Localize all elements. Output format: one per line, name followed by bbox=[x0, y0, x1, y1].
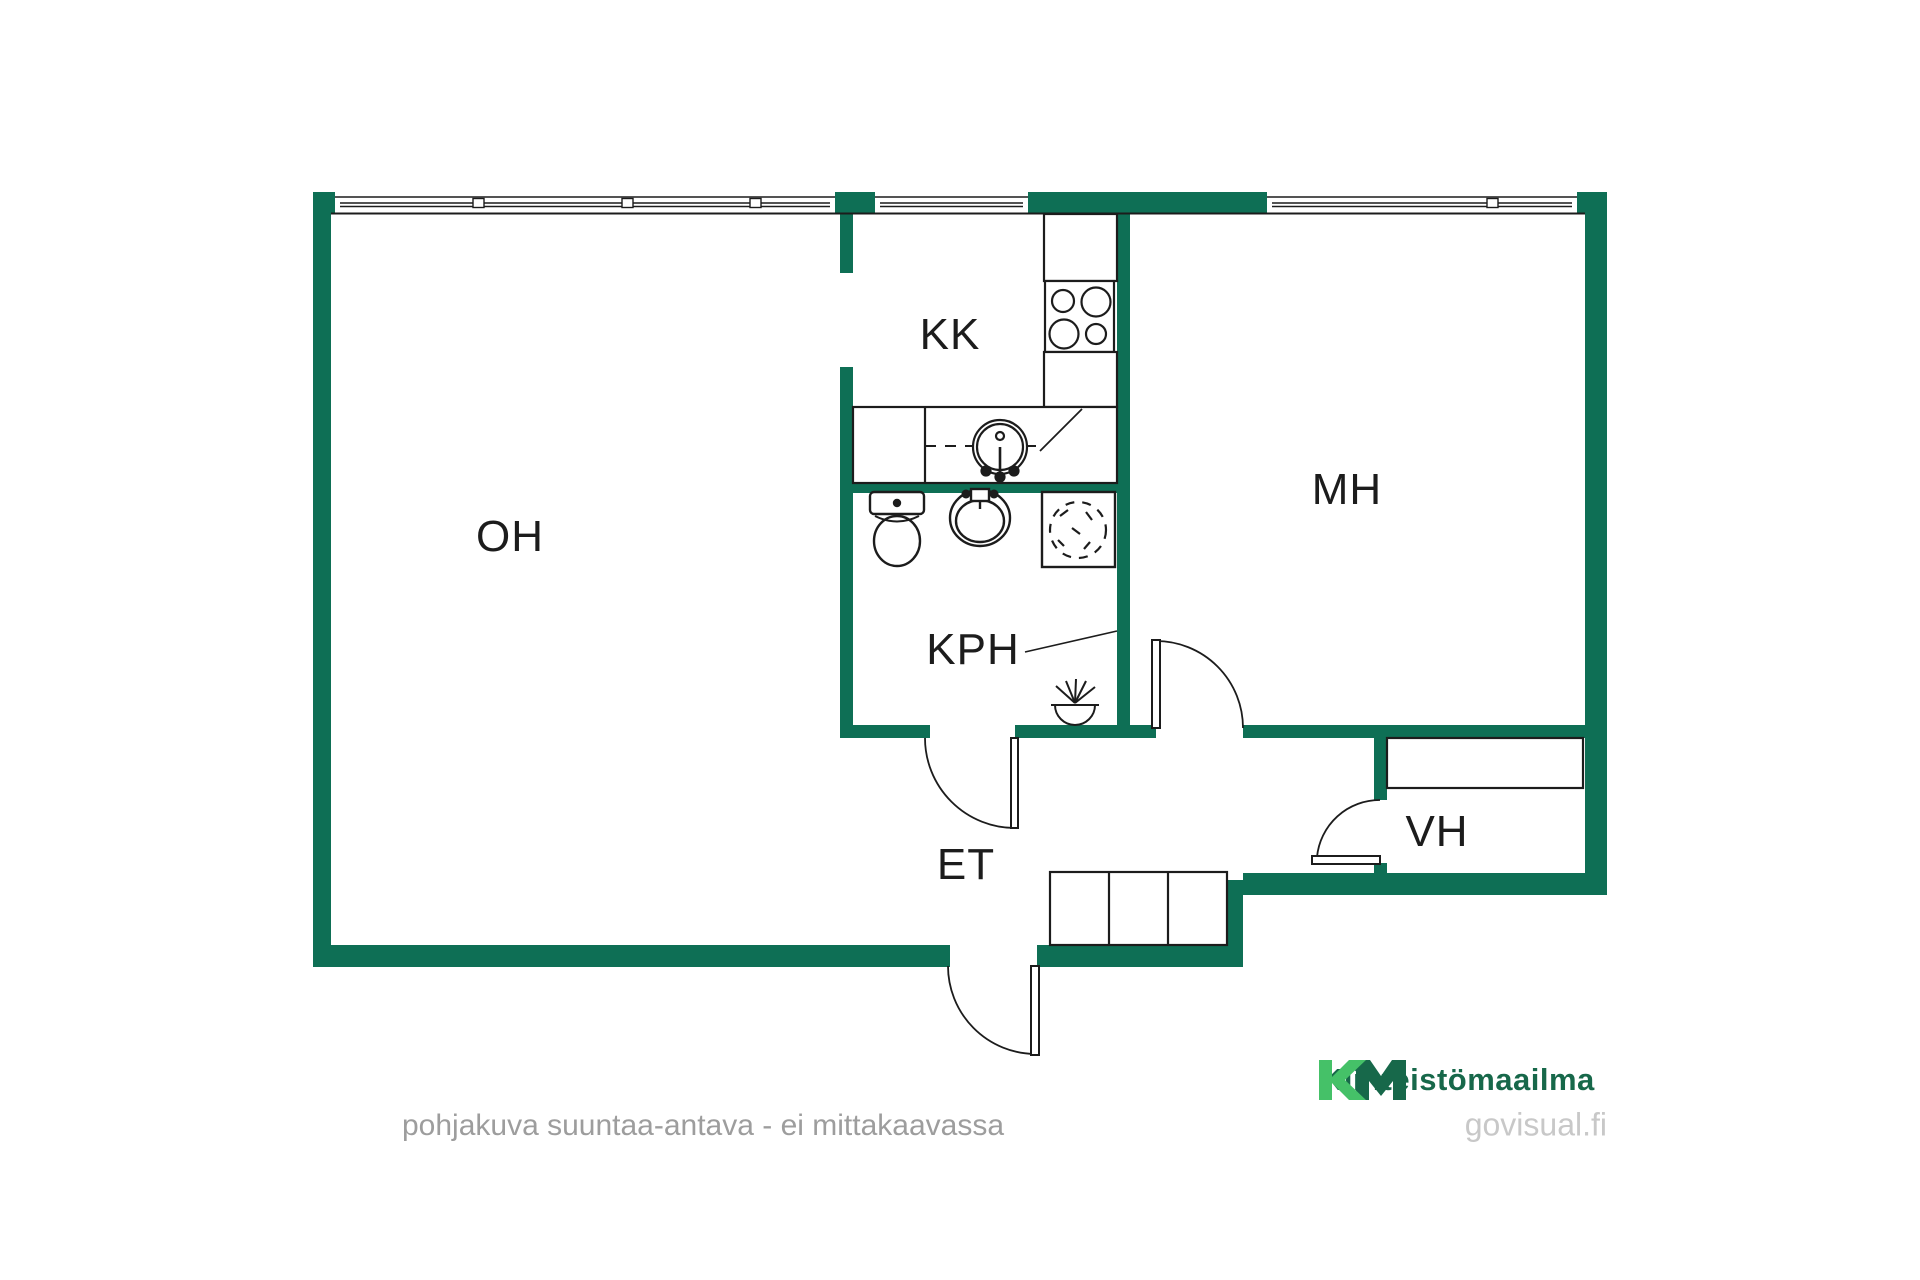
wall-left bbox=[313, 192, 331, 967]
vh-closet-shelf bbox=[1387, 738, 1583, 788]
website-text: govisual.fi bbox=[1465, 1107, 1607, 1144]
stove-symbol bbox=[1045, 281, 1114, 352]
door-mh bbox=[1152, 640, 1243, 728]
room-label-oh: OH bbox=[476, 512, 544, 562]
wall-oh-kk-upper bbox=[840, 214, 853, 273]
disclaimer-text: pohjakuva suuntaa-antava - ei mittakaava… bbox=[402, 1109, 1004, 1143]
wall-vh-south bbox=[1243, 873, 1607, 895]
door-entrance bbox=[948, 966, 1039, 1055]
kiinteistomaailma-brand: Kiinteistömaailma bbox=[1315, 1056, 1595, 1104]
wall-right bbox=[1585, 192, 1607, 895]
wall-mh-south bbox=[1243, 725, 1587, 738]
sink-symbol bbox=[973, 420, 1027, 482]
floor-drain-shower-symbol bbox=[1051, 679, 1099, 725]
toilet-symbol bbox=[870, 492, 924, 566]
wall-oh-kph bbox=[840, 367, 853, 738]
bathroom-fixtures bbox=[870, 489, 1117, 725]
door-kph bbox=[925, 738, 1018, 828]
km-logo-icon bbox=[1315, 1056, 1407, 1104]
floorplan-page: OH KK MH KPH ET VH pohjakuva suuntaa-ant… bbox=[0, 0, 1920, 1280]
room-label-mh: MH bbox=[1312, 465, 1382, 515]
door-vh bbox=[1312, 800, 1380, 864]
wall-step-connector bbox=[1227, 880, 1243, 967]
room-label-kph: KPH bbox=[926, 625, 1019, 675]
washing-machine-reservation-symbol bbox=[1042, 492, 1115, 567]
wall-kph-et-east bbox=[1015, 725, 1156, 738]
window-mh bbox=[1267, 192, 1577, 214]
room-label-kk: KK bbox=[920, 310, 981, 360]
hallway-closet bbox=[1050, 872, 1227, 945]
wall-vh-door-jamb-upper bbox=[1374, 737, 1387, 800]
wall-bottom-mid bbox=[1037, 945, 1243, 967]
kph-leader-line bbox=[1025, 631, 1117, 652]
wall-kph-et-west bbox=[840, 725, 930, 738]
room-label-et: ET bbox=[937, 840, 995, 890]
kitchen-fixtures bbox=[853, 214, 1117, 483]
kitchen-cabinet-upper bbox=[1044, 214, 1117, 281]
windows bbox=[331, 192, 1585, 214]
room-label-vh: VH bbox=[1405, 807, 1468, 857]
wall-kk-mh bbox=[1117, 214, 1130, 738]
window-kk bbox=[875, 192, 1028, 214]
window-oh bbox=[335, 192, 835, 214]
washbasin-symbol bbox=[950, 489, 1010, 546]
kitchen-cabinet-lower bbox=[1044, 352, 1117, 407]
wall-bottom-west bbox=[313, 945, 950, 967]
closets bbox=[1050, 738, 1583, 945]
